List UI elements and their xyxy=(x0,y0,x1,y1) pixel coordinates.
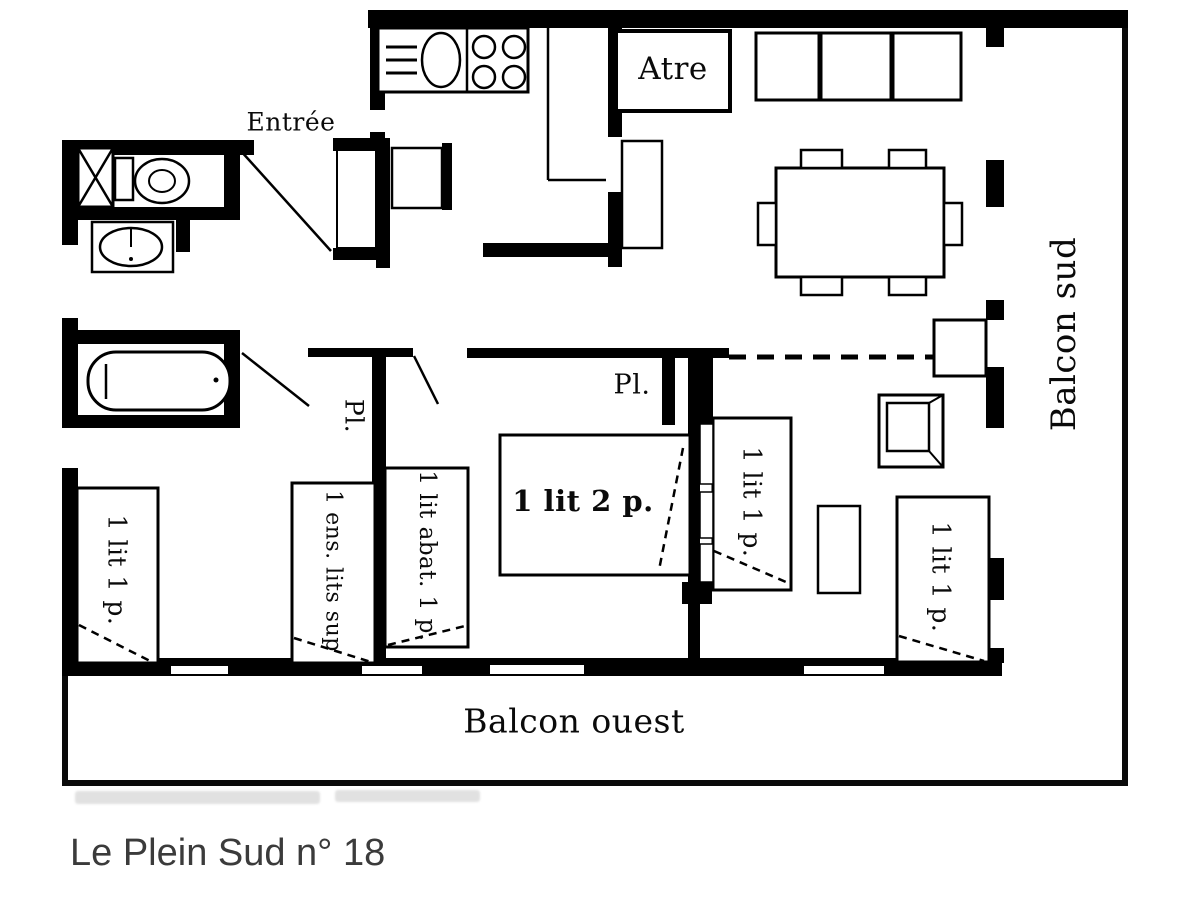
wall-wc-right xyxy=(224,140,240,220)
door-swing-entrance xyxy=(240,150,331,251)
window-right-2 xyxy=(986,207,1004,300)
stove-burner xyxy=(503,66,525,88)
wall-bath-top xyxy=(62,330,240,344)
wall-wc-bottom xyxy=(62,207,240,220)
entry-closet xyxy=(337,150,376,248)
armchair-inner xyxy=(887,403,929,451)
sofa-cushion xyxy=(756,33,819,100)
dining-chair xyxy=(801,150,842,168)
floor-plan-drawing xyxy=(0,0,1200,900)
wall-pier-top xyxy=(688,348,713,428)
kitchen-cabinet xyxy=(392,148,442,208)
balcony-outline-bottom xyxy=(62,780,1128,786)
sofa-cushion xyxy=(821,33,891,100)
window-bottom-2 xyxy=(362,666,422,674)
bathtub xyxy=(88,352,230,410)
wall-notch xyxy=(700,544,713,582)
door-swing-bedroom-double xyxy=(414,356,438,404)
nightstand xyxy=(934,320,986,376)
bathtub-drain xyxy=(214,378,219,383)
window-bottom-1 xyxy=(171,666,228,674)
wall-closet-bottom xyxy=(333,248,390,260)
stove-burner xyxy=(473,36,495,58)
bed-bunk-label: 1 ens. lits sup xyxy=(321,490,346,652)
floor-plan: Entrée Atre Balcon sud Balcon ouest Pl. … xyxy=(0,0,1200,900)
toilet-tank xyxy=(115,158,133,200)
wall-kitchen-living-lower xyxy=(608,192,622,267)
balcony-outline-east xyxy=(1122,28,1128,785)
bed-single-middle-label: 1 lit 1 p. xyxy=(738,447,767,558)
wall-bath-bottom xyxy=(62,415,240,428)
dining-chair xyxy=(889,150,926,168)
dining-table xyxy=(776,168,944,277)
watermark-smudge xyxy=(75,791,320,804)
bed-single-right-label: 1 lit 1 p. xyxy=(927,522,956,633)
stove-burner xyxy=(503,36,525,58)
wall-notch xyxy=(700,424,713,484)
sofa-cushion xyxy=(893,33,961,100)
kitchen-sink xyxy=(422,33,460,87)
window-right-1 xyxy=(986,47,1004,160)
window-bottom-3 xyxy=(490,665,584,674)
toilet-bowl-inner xyxy=(149,170,175,192)
fireplace-label: Atre xyxy=(638,51,707,87)
bed-folding-label: 1 lit abat. 1 p. xyxy=(414,470,440,641)
stove-burner xyxy=(473,66,495,88)
plan-title: Le Plein Sud n° 18 xyxy=(70,832,385,875)
wall-kitchen-alcove-stub xyxy=(442,143,452,210)
balcony-west-label: Balcon ouest xyxy=(463,702,684,741)
closet-label-left: Pl. xyxy=(340,399,369,433)
balcony-outline-left xyxy=(62,675,68,785)
wall-closet2-right xyxy=(662,353,675,425)
entrance-label: Entrée xyxy=(247,108,336,137)
dining-chair xyxy=(889,277,926,295)
wall-hall-south-a xyxy=(308,348,413,357)
wall-basin-stub xyxy=(176,220,190,252)
dining-chair xyxy=(801,277,842,295)
bed-single-left-label: 1 lit 1 p. xyxy=(103,515,132,626)
bed-double-label: 1 lit 2 p. xyxy=(512,484,653,518)
wall-pier-bottom xyxy=(682,582,712,604)
wall-top xyxy=(368,10,1128,28)
window-left-1 xyxy=(62,245,78,318)
wall-notch xyxy=(700,492,713,538)
side-table xyxy=(818,506,860,593)
dining-chair xyxy=(758,203,776,245)
closet-label-center: Pl. xyxy=(614,370,651,401)
door-swing-bedroom-left xyxy=(242,353,309,406)
watermark-smudge xyxy=(335,790,480,802)
balcony-south-label: Balcon sud xyxy=(1044,237,1084,431)
window-right-3 xyxy=(986,320,1004,367)
window-bottom-4 xyxy=(804,666,884,674)
washbasin-drain xyxy=(129,257,133,261)
dining-chair xyxy=(944,203,962,245)
tv-cabinet xyxy=(622,141,662,248)
wall-kitchen-bottom xyxy=(483,243,610,257)
